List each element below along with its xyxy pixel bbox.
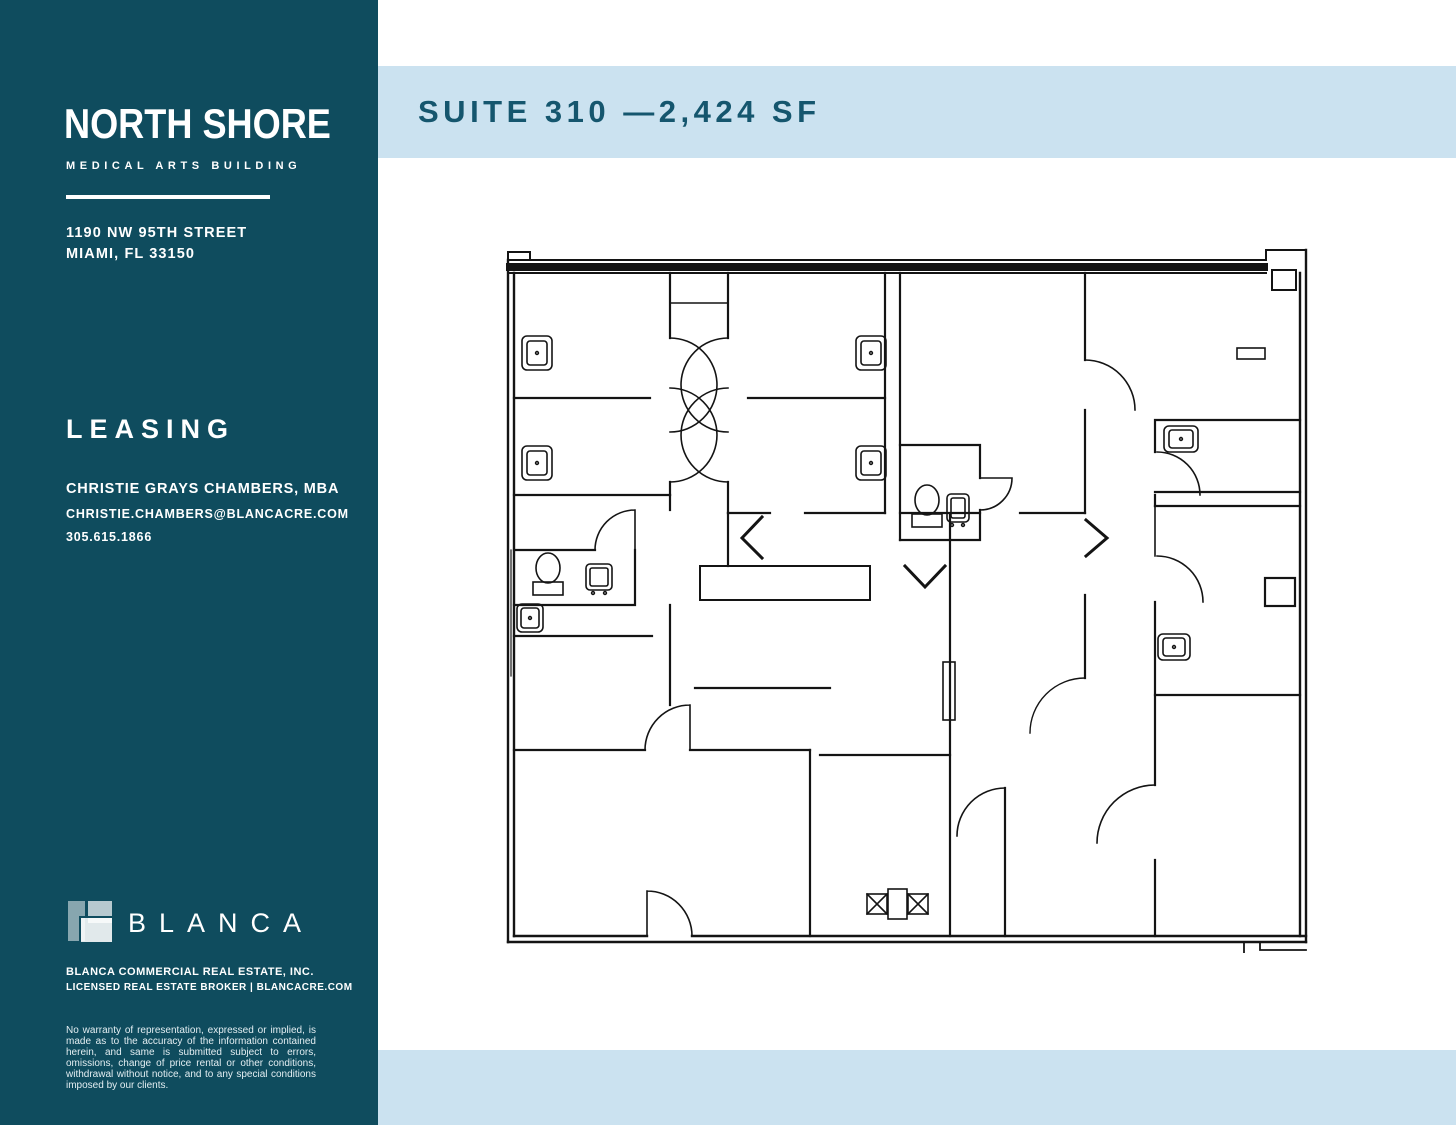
sink-icon — [1158, 634, 1190, 660]
sink-icon — [522, 446, 552, 480]
legal-disclaimer: No warranty of representation, expressed… — [66, 1026, 316, 1091]
sink-icon — [522, 336, 552, 370]
blanca-logo-text: BLANCA — [128, 908, 314, 939]
blanca-logo-icon — [68, 901, 118, 947]
sink-icon — [1164, 426, 1198, 452]
window-wall — [508, 250, 1306, 290]
flyer-page: NORTH SHORE MEDICAL ARTS BUILDING 1190 N… — [0, 0, 1456, 1125]
shaft-symbols — [867, 889, 928, 919]
brokerage-company-name: BLANCA COMMERCIAL REAL ESTATE, INC. — [66, 966, 314, 978]
sink-icons — [517, 336, 1198, 660]
stair-steps — [1244, 942, 1306, 953]
sink-icon — [586, 564, 612, 594]
reception-counter — [700, 566, 870, 600]
sidebar: NORTH SHORE MEDICAL ARTS BUILDING 1190 N… — [0, 0, 378, 1125]
toilet-icon — [912, 485, 942, 527]
title-band: SUITE 310 —2,424 SF — [378, 66, 1456, 158]
leasing-contact-email[interactable]: CHRISTIE.CHAMBERS@BLANCACRE.COM — [66, 507, 349, 521]
floor-plan-drawing — [500, 248, 1315, 953]
leasing-heading: LEASING — [66, 414, 235, 445]
sink-icon — [947, 494, 969, 526]
toilet-icons — [533, 485, 942, 595]
logo-rect-3 — [81, 918, 112, 942]
address-line-1: 1190 NW 95TH STREET — [66, 223, 247, 244]
leasing-contact-name: CHRISTIE GRAYS CHAMBERS, MBA — [66, 481, 339, 497]
building-logo-subtitle: MEDICAL ARTS BUILDING — [66, 160, 301, 172]
sink-icon — [856, 446, 886, 480]
leasing-contact-phone[interactable]: 305.615.1866 — [66, 530, 152, 544]
sink-icon — [856, 336, 886, 370]
toilet-icon — [533, 553, 563, 595]
building-logo-title: NORTH SHORE — [64, 100, 331, 148]
building-address: 1190 NW 95TH STREET MIAMI, FL 33150 — [66, 223, 247, 265]
brokerage-license-line: LICENSED REAL ESTATE BROKER | BLANCACRE.… — [66, 982, 353, 993]
interior-walls — [514, 273, 1300, 936]
floor-plan — [500, 248, 1315, 953]
footer-band — [378, 1050, 1456, 1125]
sink-icon — [517, 604, 543, 632]
address-line-2: MIAMI, FL 33150 — [66, 244, 247, 265]
exterior-walls — [508, 250, 1306, 942]
suite-title: SUITE 310 —2,424 SF — [418, 94, 821, 130]
divider-rule — [66, 195, 270, 199]
